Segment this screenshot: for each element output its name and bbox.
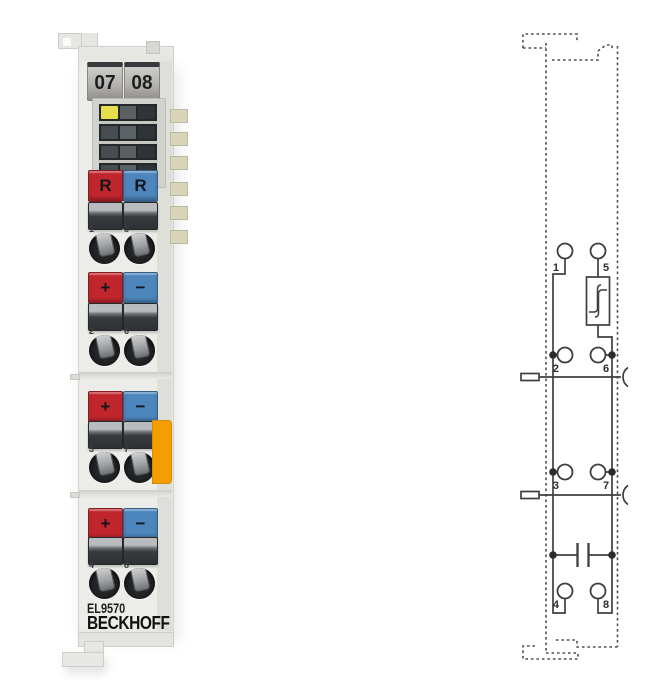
terminal-number-label: 7 bbox=[124, 445, 129, 454]
terminal-number-label: 6 bbox=[124, 327, 129, 336]
led-row bbox=[99, 124, 157, 141]
housing-seam-tab bbox=[70, 492, 80, 498]
circuit-wires bbox=[553, 259, 612, 614]
led-off bbox=[101, 126, 118, 139]
led-off bbox=[120, 146, 137, 159]
power-contact-blade-icon bbox=[521, 374, 539, 381]
plus-terminal-button: + bbox=[88, 272, 123, 304]
release-lever-icon bbox=[94, 568, 115, 592]
led-off bbox=[138, 146, 155, 159]
terminal-circle-5 bbox=[591, 244, 606, 259]
release-lever-icon bbox=[129, 568, 150, 592]
wire-release-hole bbox=[124, 335, 155, 366]
plus-terminal-button: + bbox=[88, 391, 123, 423]
release-lever-icon bbox=[94, 335, 115, 359]
reset-button-red: R bbox=[88, 170, 123, 202]
led-lit-yellow bbox=[101, 106, 118, 119]
top-right-tab bbox=[146, 41, 160, 54]
diagram-terminal-8: 8 bbox=[603, 599, 609, 611]
el9570-module-photo: 07 08 bbox=[0, 0, 400, 699]
button-label: + bbox=[101, 397, 111, 417]
release-lever-icon bbox=[94, 233, 115, 257]
wire-release-hole bbox=[89, 452, 120, 483]
slot-number-label: 08 bbox=[131, 72, 152, 95]
led-off bbox=[120, 126, 137, 139]
button-label: R bbox=[134, 176, 146, 196]
diagram-terminal-4: 4 bbox=[553, 599, 560, 611]
diagram-terminal-1: 1 bbox=[553, 262, 559, 274]
ebus-contact-icon bbox=[170, 182, 188, 196]
button-label: + bbox=[101, 278, 111, 298]
housing-seam-tab bbox=[70, 374, 80, 380]
wire-release-hole bbox=[124, 233, 155, 264]
plus-terminal-button: + bbox=[88, 508, 123, 540]
minus-terminal-button: − bbox=[123, 272, 158, 304]
left-rail bbox=[553, 259, 565, 614]
button-label: + bbox=[101, 514, 111, 534]
terminal-circle-4 bbox=[558, 584, 573, 599]
terminal-circle-2 bbox=[558, 348, 573, 363]
terminal-number-label: 5 bbox=[124, 225, 129, 234]
minus-terminal-button: − bbox=[123, 391, 158, 423]
product-view: 07 08 bbox=[0, 0, 661, 699]
wire-release-hole bbox=[89, 568, 120, 599]
button-label: R bbox=[99, 176, 111, 196]
terminal-number-labels: 1 5 2 6 3 7 4 8 bbox=[553, 262, 609, 611]
diagram-terminal-5: 5 bbox=[603, 262, 609, 274]
terminal-number-label: 1 bbox=[89, 225, 94, 234]
wiring-diagram: 1 5 2 6 3 7 4 8 bbox=[480, 0, 661, 699]
power-contact-blade-icon bbox=[521, 492, 539, 499]
led-window bbox=[99, 104, 157, 180]
terminal-number-label: 8 bbox=[124, 561, 129, 570]
orange-latch bbox=[152, 420, 172, 484]
diagram-terminal-2: 2 bbox=[553, 363, 559, 375]
release-lever-icon bbox=[94, 452, 115, 476]
mounting-foot bbox=[62, 652, 104, 667]
terminal-circle-3 bbox=[558, 465, 573, 480]
led-row bbox=[99, 104, 157, 121]
minus-terminal-button: − bbox=[123, 508, 158, 540]
wire-release-hole bbox=[124, 568, 155, 599]
led-row bbox=[99, 144, 157, 161]
housing-seam bbox=[78, 490, 172, 497]
ebus-contact-icon bbox=[170, 109, 188, 123]
led-off bbox=[101, 146, 118, 159]
terminal-circle-8 bbox=[591, 584, 606, 599]
reset-button-blue: R bbox=[123, 170, 158, 202]
ebus-contact-icon bbox=[170, 132, 188, 146]
terminal-circle-6 bbox=[591, 348, 606, 363]
diagram-terminal-3: 3 bbox=[553, 480, 559, 492]
slot-number-tab-right: 08 bbox=[124, 62, 160, 101]
slot-number-tab-left: 07 bbox=[87, 62, 123, 101]
release-lever-icon bbox=[129, 335, 150, 359]
terminal-circle-1 bbox=[558, 244, 573, 259]
release-lever-icon bbox=[129, 452, 150, 476]
led-off bbox=[138, 106, 155, 119]
capacitor-icon bbox=[553, 543, 612, 567]
diagram-terminal-7: 7 bbox=[603, 480, 609, 492]
button-label: − bbox=[136, 278, 146, 298]
mounting-hook-notch bbox=[63, 38, 71, 46]
terminal-circle-7 bbox=[591, 465, 606, 480]
terminal-outline bbox=[523, 34, 618, 659]
terminal-number-label: 2 bbox=[89, 327, 94, 336]
power-contact-socket-icon bbox=[623, 486, 628, 505]
wire-release-hole bbox=[124, 452, 155, 483]
junction-dots bbox=[549, 351, 616, 559]
diagram-terminal-6: 6 bbox=[603, 363, 609, 375]
terminal-number-label: 4 bbox=[89, 561, 94, 570]
wire-release-hole bbox=[89, 335, 120, 366]
ebus-contact-icon bbox=[170, 156, 188, 170]
terminal-number-label: 3 bbox=[89, 445, 94, 454]
brand-label: BECKHOFF bbox=[87, 613, 170, 634]
ebus-contact-icon bbox=[170, 206, 188, 220]
led-off bbox=[138, 126, 155, 139]
button-label: − bbox=[136, 397, 146, 417]
wire-release-hole bbox=[89, 233, 120, 264]
chopper-box-icon bbox=[587, 277, 610, 325]
slot-number-label: 07 bbox=[94, 72, 115, 95]
release-lever-icon bbox=[129, 233, 150, 257]
led-off bbox=[120, 106, 137, 119]
power-contact-socket-icon bbox=[623, 368, 628, 387]
ebus-contact-icon bbox=[170, 230, 188, 244]
housing-seam bbox=[78, 372, 172, 379]
button-label: − bbox=[136, 514, 146, 534]
